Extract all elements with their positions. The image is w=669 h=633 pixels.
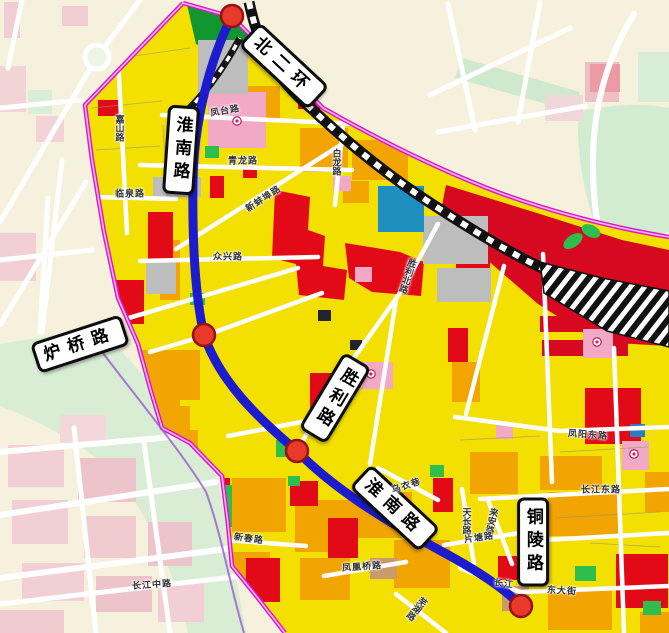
road-name-10: 长江东路 <box>581 483 621 496</box>
road-sign-6: 铜陵路 <box>517 498 549 587</box>
road-name-14: 片塘路 <box>463 528 495 545</box>
road-name-11: 乌衣巷 <box>390 474 423 496</box>
road-name-20: 长江中路 <box>132 576 173 592</box>
road-name-4: 嘉山路 <box>114 115 127 142</box>
road-name-18: 芜湖路 <box>404 594 431 623</box>
road-sign-4: 胜利路 <box>298 352 371 445</box>
road-name-17: 凤凰桥路 <box>342 558 383 574</box>
road-name-19: 新春路 <box>233 529 265 546</box>
road-name-3: 白龙路 <box>331 149 344 176</box>
road-sign-2: 淮南路 <box>162 104 200 195</box>
road-sign-3: 炉桥路 <box>30 314 130 374</box>
road-sign-1: 北二环 <box>238 22 329 110</box>
road-name-16: 东大街 <box>547 582 578 597</box>
city-zoning-map: 北二环淮南路炉桥路胜利路淮南路铜陵路凤台路青龙路白龙路嘉山路临泉路新蚌埠路众兴路… <box>0 0 669 633</box>
road-name-5: 临泉路 <box>115 187 145 200</box>
road-name-8: 胜利北路 <box>396 257 419 295</box>
labels-layer: 北二环淮南路炉桥路胜利路淮南路铜陵路凤台路青龙路白龙路嘉山路临泉路新蚌埠路众兴路… <box>0 0 669 633</box>
road-name-2: 青龙路 <box>228 154 258 167</box>
road-name-9: 凤阳东路 <box>568 426 609 442</box>
road-sign-5: 淮南路 <box>349 464 440 552</box>
road-name-15: 长江 <box>493 575 515 591</box>
road-name-1: 凤台路 <box>209 101 241 119</box>
road-name-6: 新蚌埠路 <box>243 182 284 215</box>
road-name-7: 众兴路 <box>213 250 243 263</box>
